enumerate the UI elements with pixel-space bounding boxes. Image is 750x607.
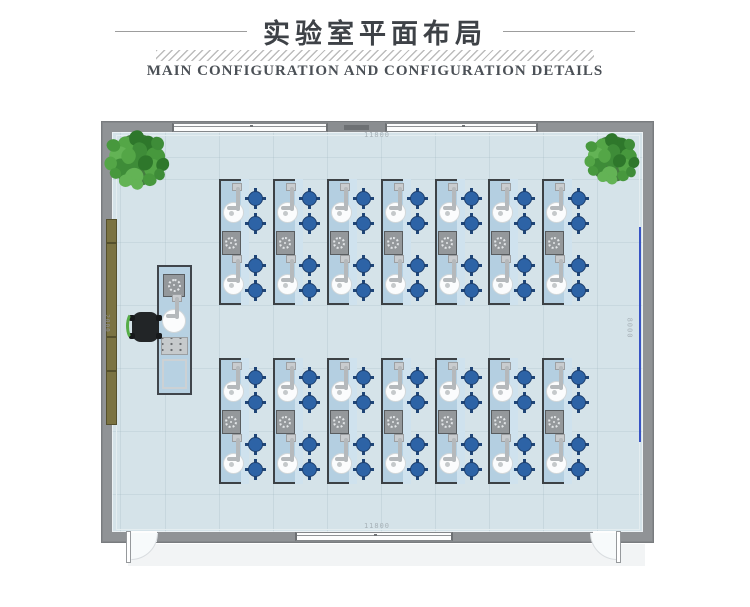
valve-gear-icon bbox=[225, 416, 237, 428]
stool-seat bbox=[571, 462, 586, 477]
stool-seat bbox=[517, 370, 532, 385]
faucet-spout bbox=[550, 457, 561, 461]
stool bbox=[407, 280, 428, 301]
stool bbox=[245, 255, 266, 276]
window-top-left bbox=[172, 123, 328, 132]
stool-seat bbox=[464, 258, 479, 273]
stool-seat bbox=[410, 395, 425, 410]
faucet-spout bbox=[166, 314, 177, 318]
stool-seat bbox=[410, 191, 425, 206]
stool-seat bbox=[517, 437, 532, 452]
stool bbox=[568, 255, 589, 276]
stool-seat bbox=[464, 462, 479, 477]
valve-gear-icon bbox=[494, 237, 506, 249]
stool-seat bbox=[248, 462, 263, 477]
faucet-spout bbox=[281, 385, 292, 389]
stool bbox=[461, 392, 482, 413]
teacher-station bbox=[157, 265, 192, 395]
stool-seat bbox=[302, 258, 317, 273]
lab-bench-r1-c5 bbox=[435, 179, 485, 305]
stool bbox=[568, 434, 589, 455]
stool bbox=[245, 367, 266, 388]
page-title: 实验室平面布局 bbox=[263, 12, 487, 51]
sink-basin bbox=[162, 309, 186, 333]
dimension-label-left: 2000 bbox=[104, 314, 111, 332]
valve-gear-icon bbox=[548, 237, 560, 249]
lab-bench-r2-c2 bbox=[273, 358, 323, 484]
lab-bench-r2-c1 bbox=[219, 358, 269, 484]
stool bbox=[461, 255, 482, 276]
faucet-spout bbox=[227, 385, 238, 389]
gas-valve-box bbox=[276, 231, 295, 255]
lab-bench-r2-c5 bbox=[435, 358, 485, 484]
faucet-spout bbox=[335, 457, 346, 461]
stool-seat bbox=[464, 395, 479, 410]
faucet-spout bbox=[443, 457, 454, 461]
stool bbox=[461, 213, 482, 234]
dimension-label-top: 11800 bbox=[347, 131, 407, 139]
stool bbox=[407, 434, 428, 455]
stool bbox=[353, 280, 374, 301]
faucet-spout bbox=[335, 206, 346, 210]
stool-seat bbox=[517, 283, 532, 298]
valve-gear-icon bbox=[333, 237, 345, 249]
faucet-spout bbox=[496, 206, 507, 210]
stool-seat bbox=[464, 216, 479, 231]
page: 实验室平面布局 MAIN CONFIGURATION AND CONFIGURA… bbox=[0, 0, 750, 607]
stool bbox=[353, 392, 374, 413]
gas-valve-box bbox=[491, 231, 510, 255]
stool-seat bbox=[302, 462, 317, 477]
lab-bench-r1-c4 bbox=[381, 179, 431, 305]
lab-bench-r1-c2 bbox=[273, 179, 323, 305]
work-surface bbox=[162, 359, 187, 389]
stool bbox=[299, 367, 320, 388]
hatch-divider bbox=[156, 50, 594, 61]
stool bbox=[299, 392, 320, 413]
stool-seat bbox=[356, 191, 371, 206]
stool bbox=[299, 255, 320, 276]
stool bbox=[353, 213, 374, 234]
faucet-spout bbox=[389, 385, 400, 389]
stool bbox=[461, 459, 482, 480]
title-left-rule bbox=[115, 31, 247, 32]
stool-seat bbox=[248, 283, 263, 298]
stool-seat bbox=[410, 258, 425, 273]
title-right-rule bbox=[503, 31, 635, 32]
stool-seat bbox=[571, 395, 586, 410]
gas-valve-box bbox=[222, 410, 241, 434]
stool bbox=[568, 213, 589, 234]
door-leaf-left bbox=[126, 531, 131, 563]
stool bbox=[299, 188, 320, 209]
stool bbox=[568, 459, 589, 480]
stool-seat bbox=[571, 283, 586, 298]
stool-seat bbox=[571, 437, 586, 452]
gas-valve-box bbox=[438, 231, 457, 255]
stool bbox=[245, 392, 266, 413]
stool bbox=[514, 367, 535, 388]
stool-seat bbox=[410, 462, 425, 477]
stool-seat bbox=[464, 437, 479, 452]
faucet-spout bbox=[443, 385, 454, 389]
gas-valve-box bbox=[330, 231, 349, 255]
ground-shadow bbox=[128, 544, 645, 566]
stool bbox=[245, 213, 266, 234]
valve-gear-icon bbox=[279, 416, 291, 428]
teacher-chair bbox=[132, 312, 159, 342]
gas-valve-box bbox=[330, 410, 349, 434]
faucet-spout bbox=[227, 206, 238, 210]
faucet-spout bbox=[389, 457, 400, 461]
stool bbox=[245, 434, 266, 455]
stool bbox=[353, 255, 374, 276]
faucet-spout bbox=[550, 385, 561, 389]
lab-bench-r2-c4 bbox=[381, 358, 431, 484]
door-leaf-right bbox=[616, 531, 621, 563]
gas-valve-box bbox=[545, 231, 564, 255]
stool-seat bbox=[356, 216, 371, 231]
faucet-spout bbox=[389, 278, 400, 282]
faucet-spout bbox=[496, 385, 507, 389]
faucet-spout bbox=[335, 385, 346, 389]
valve-gear-icon bbox=[225, 237, 237, 249]
stool bbox=[461, 188, 482, 209]
stool bbox=[407, 392, 428, 413]
valve-gear-icon bbox=[548, 416, 560, 428]
stool bbox=[514, 392, 535, 413]
gas-valve-box bbox=[545, 410, 564, 434]
stool-seat bbox=[356, 283, 371, 298]
dimension-line bbox=[639, 227, 641, 442]
stool-seat bbox=[302, 395, 317, 410]
gas-valve-box bbox=[384, 410, 403, 434]
stool-seat bbox=[464, 191, 479, 206]
faucet-spout bbox=[550, 206, 561, 210]
stool-seat bbox=[302, 283, 317, 298]
stool bbox=[353, 459, 374, 480]
window-bottom bbox=[295, 532, 453, 541]
lab-bench-r1-c3 bbox=[327, 179, 377, 305]
faucet-spout bbox=[335, 278, 346, 282]
stool bbox=[568, 280, 589, 301]
stool-seat bbox=[517, 462, 532, 477]
stool-seat bbox=[517, 258, 532, 273]
stool bbox=[568, 392, 589, 413]
stool bbox=[461, 367, 482, 388]
faucet-spout bbox=[443, 278, 454, 282]
lab-bench-r1-c1 bbox=[219, 179, 269, 305]
faucet-spout bbox=[496, 457, 507, 461]
valve-gear-icon bbox=[387, 237, 399, 249]
stool-seat bbox=[517, 191, 532, 206]
lab-bench-r2-c7 bbox=[542, 358, 592, 484]
control-panel bbox=[161, 337, 188, 355]
stool bbox=[514, 213, 535, 234]
stool-seat bbox=[410, 216, 425, 231]
stool-seat bbox=[356, 395, 371, 410]
gas-valve-box bbox=[491, 410, 510, 434]
stool bbox=[299, 459, 320, 480]
stool bbox=[353, 367, 374, 388]
floor-plan: 11800 11800 8000 2000 bbox=[102, 122, 653, 542]
dimension-label-right: 8000 bbox=[625, 318, 633, 339]
stool-seat bbox=[356, 437, 371, 452]
page-subtitle: MAIN CONFIGURATION AND CONFIGURATION DET… bbox=[0, 63, 750, 80]
faucet-spout bbox=[443, 206, 454, 210]
stool-seat bbox=[356, 370, 371, 385]
stool bbox=[407, 459, 428, 480]
stool bbox=[514, 280, 535, 301]
stool bbox=[461, 434, 482, 455]
valve-gear-icon bbox=[279, 237, 291, 249]
stool-seat bbox=[248, 437, 263, 452]
lab-bench-r1-c7 bbox=[542, 179, 592, 305]
stool-seat bbox=[464, 283, 479, 298]
valve-gear-icon bbox=[494, 416, 506, 428]
stool bbox=[514, 188, 535, 209]
gas-valve-box bbox=[384, 231, 403, 255]
stool bbox=[245, 188, 266, 209]
stool-seat bbox=[410, 283, 425, 298]
stool-seat bbox=[248, 216, 263, 231]
stool-seat bbox=[248, 191, 263, 206]
stool bbox=[245, 280, 266, 301]
stool bbox=[568, 367, 589, 388]
faucet-spout bbox=[227, 278, 238, 282]
faucet-spout bbox=[496, 278, 507, 282]
faucet-spout bbox=[389, 206, 400, 210]
faucet-spout bbox=[281, 457, 292, 461]
stool bbox=[461, 280, 482, 301]
lab-bench-r2-c6 bbox=[488, 358, 538, 484]
faucet-spout bbox=[227, 457, 238, 461]
gas-valve-box bbox=[222, 231, 241, 255]
plant-top-left bbox=[108, 131, 166, 189]
header: 实验室平面布局 bbox=[0, 12, 750, 51]
stool bbox=[245, 459, 266, 480]
stool bbox=[407, 213, 428, 234]
valve-gear-icon bbox=[441, 237, 453, 249]
stool-seat bbox=[248, 370, 263, 385]
stool bbox=[353, 434, 374, 455]
stool-seat bbox=[410, 437, 425, 452]
faucet-spout bbox=[281, 206, 292, 210]
stool-seat bbox=[356, 258, 371, 273]
stool bbox=[299, 213, 320, 234]
stool-seat bbox=[571, 191, 586, 206]
faucet-spout bbox=[281, 278, 292, 282]
stool bbox=[407, 188, 428, 209]
stool-seat bbox=[464, 370, 479, 385]
stool-seat bbox=[248, 258, 263, 273]
stool-seat bbox=[571, 370, 586, 385]
stool bbox=[514, 255, 535, 276]
stool bbox=[299, 434, 320, 455]
stool-seat bbox=[302, 437, 317, 452]
stool bbox=[514, 434, 535, 455]
window-top-right bbox=[385, 123, 538, 132]
stool bbox=[514, 459, 535, 480]
stool bbox=[353, 188, 374, 209]
faucet-spout bbox=[550, 278, 561, 282]
stool-seat bbox=[356, 462, 371, 477]
valve-gear-icon bbox=[387, 416, 399, 428]
stool-seat bbox=[248, 395, 263, 410]
stool-seat bbox=[302, 191, 317, 206]
gas-valve-box bbox=[276, 410, 295, 434]
dimension-label-bottom: 11800 bbox=[347, 522, 407, 530]
lab-bench-r1-c6 bbox=[488, 179, 538, 305]
gas-valve-box bbox=[438, 410, 457, 434]
stool-seat bbox=[410, 370, 425, 385]
stool-seat bbox=[302, 370, 317, 385]
stool-seat bbox=[571, 216, 586, 231]
plant-top-right bbox=[587, 134, 637, 184]
stool-seat bbox=[517, 216, 532, 231]
stool-seat bbox=[571, 258, 586, 273]
valve-gear-icon bbox=[441, 416, 453, 428]
stool-seat bbox=[517, 395, 532, 410]
valve-gear-icon bbox=[168, 279, 181, 292]
stool bbox=[568, 188, 589, 209]
stool-seat bbox=[302, 216, 317, 231]
valve-gear-icon bbox=[333, 416, 345, 428]
stool bbox=[299, 280, 320, 301]
stool bbox=[407, 255, 428, 276]
stool bbox=[407, 367, 428, 388]
lab-bench-r2-c3 bbox=[327, 358, 377, 484]
